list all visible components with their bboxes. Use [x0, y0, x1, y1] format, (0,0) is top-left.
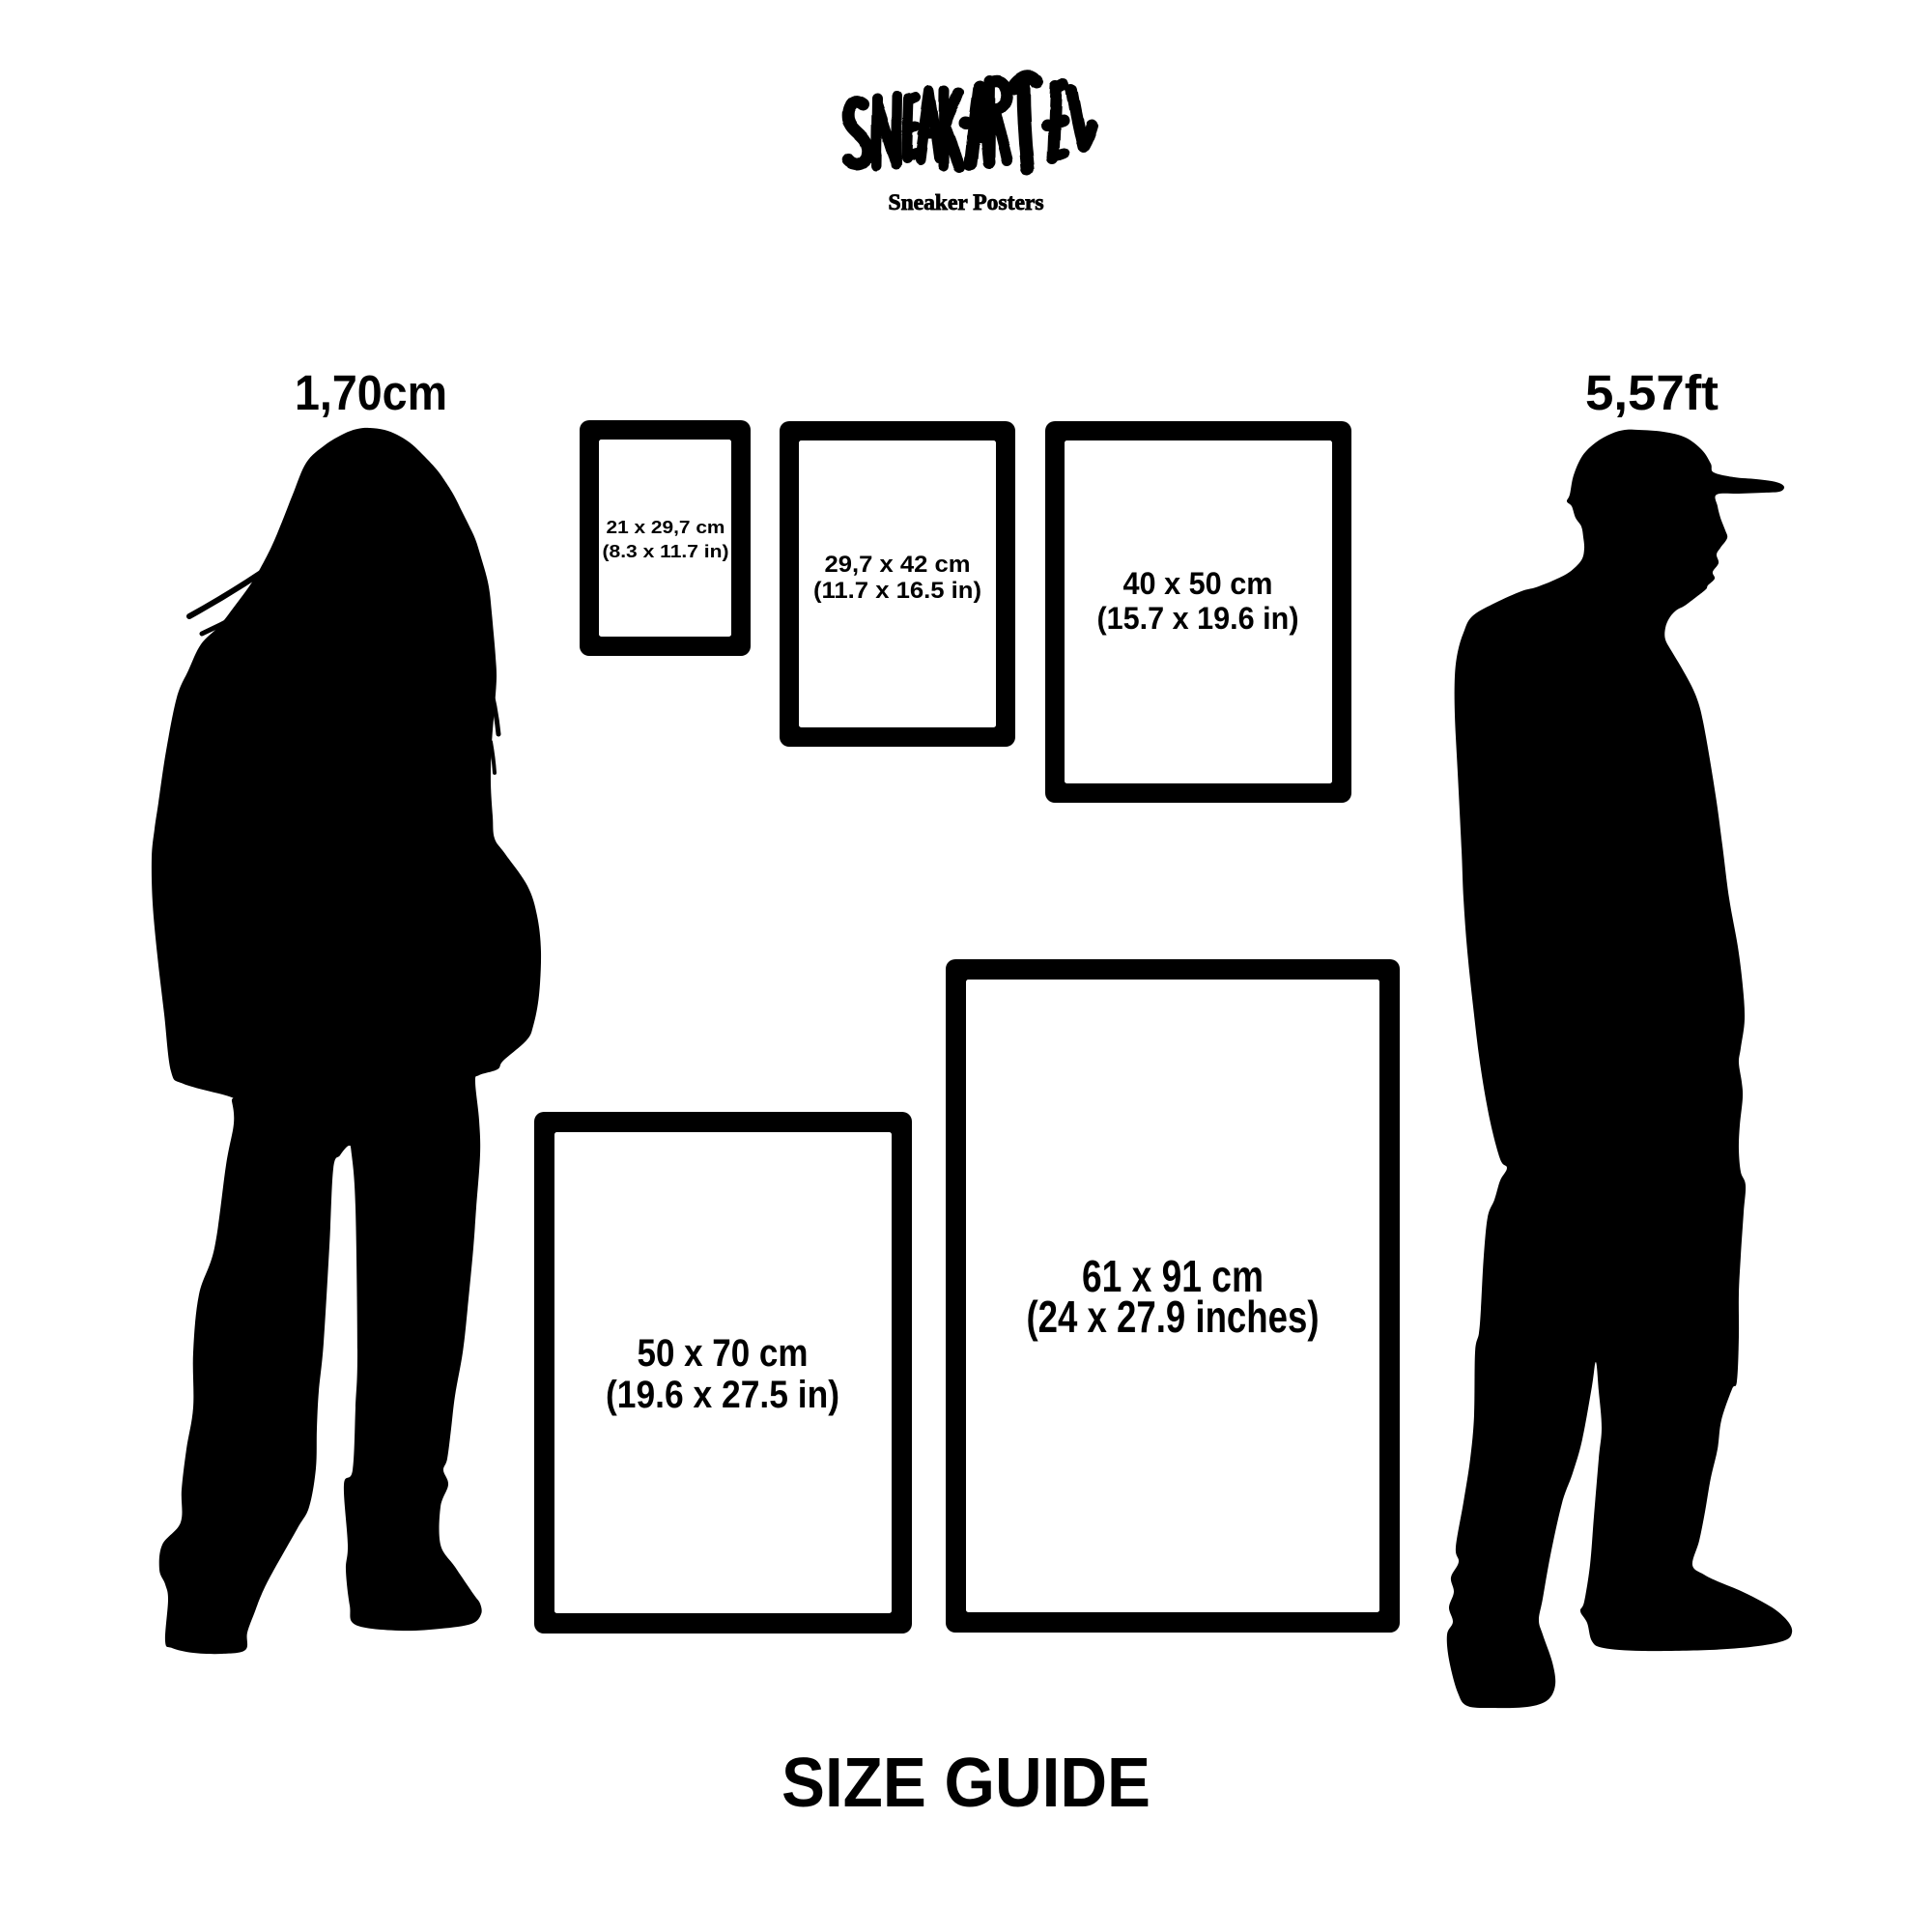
svg-text:40 x 50 cm: 40 x 50 cm: [1123, 566, 1273, 601]
svg-text:Sneaker Posters: Sneaker Posters: [889, 190, 1044, 214]
svg-text:(8.3 x 11.7 in): (8.3 x 11.7 in): [603, 542, 729, 561]
svg-text:SIZE GUIDE: SIZE GUIDE: [781, 1745, 1151, 1822]
svg-text:5,57ft: 5,57ft: [1585, 365, 1719, 420]
svg-text:50 x 70 cm: 50 x 70 cm: [638, 1332, 809, 1375]
svg-text:29,7 x 42 cm: 29,7 x 42 cm: [825, 552, 971, 578]
svg-text:(15.7 x 19.6 in): (15.7 x 19.6 in): [1097, 601, 1299, 636]
svg-text:21 x 29,7 cm: 21 x 29,7 cm: [607, 518, 725, 537]
svg-text:1,70cm: 1,70cm: [295, 365, 447, 420]
svg-text:(24 x 27.9 inches): (24 x 27.9 inches): [1027, 1292, 1320, 1342]
svg-text:(11.7 x 16.5 in): (11.7 x 16.5 in): [813, 578, 981, 604]
svg-text:(19.6 x 27.5 in): (19.6 x 27.5 in): [606, 1374, 839, 1416]
